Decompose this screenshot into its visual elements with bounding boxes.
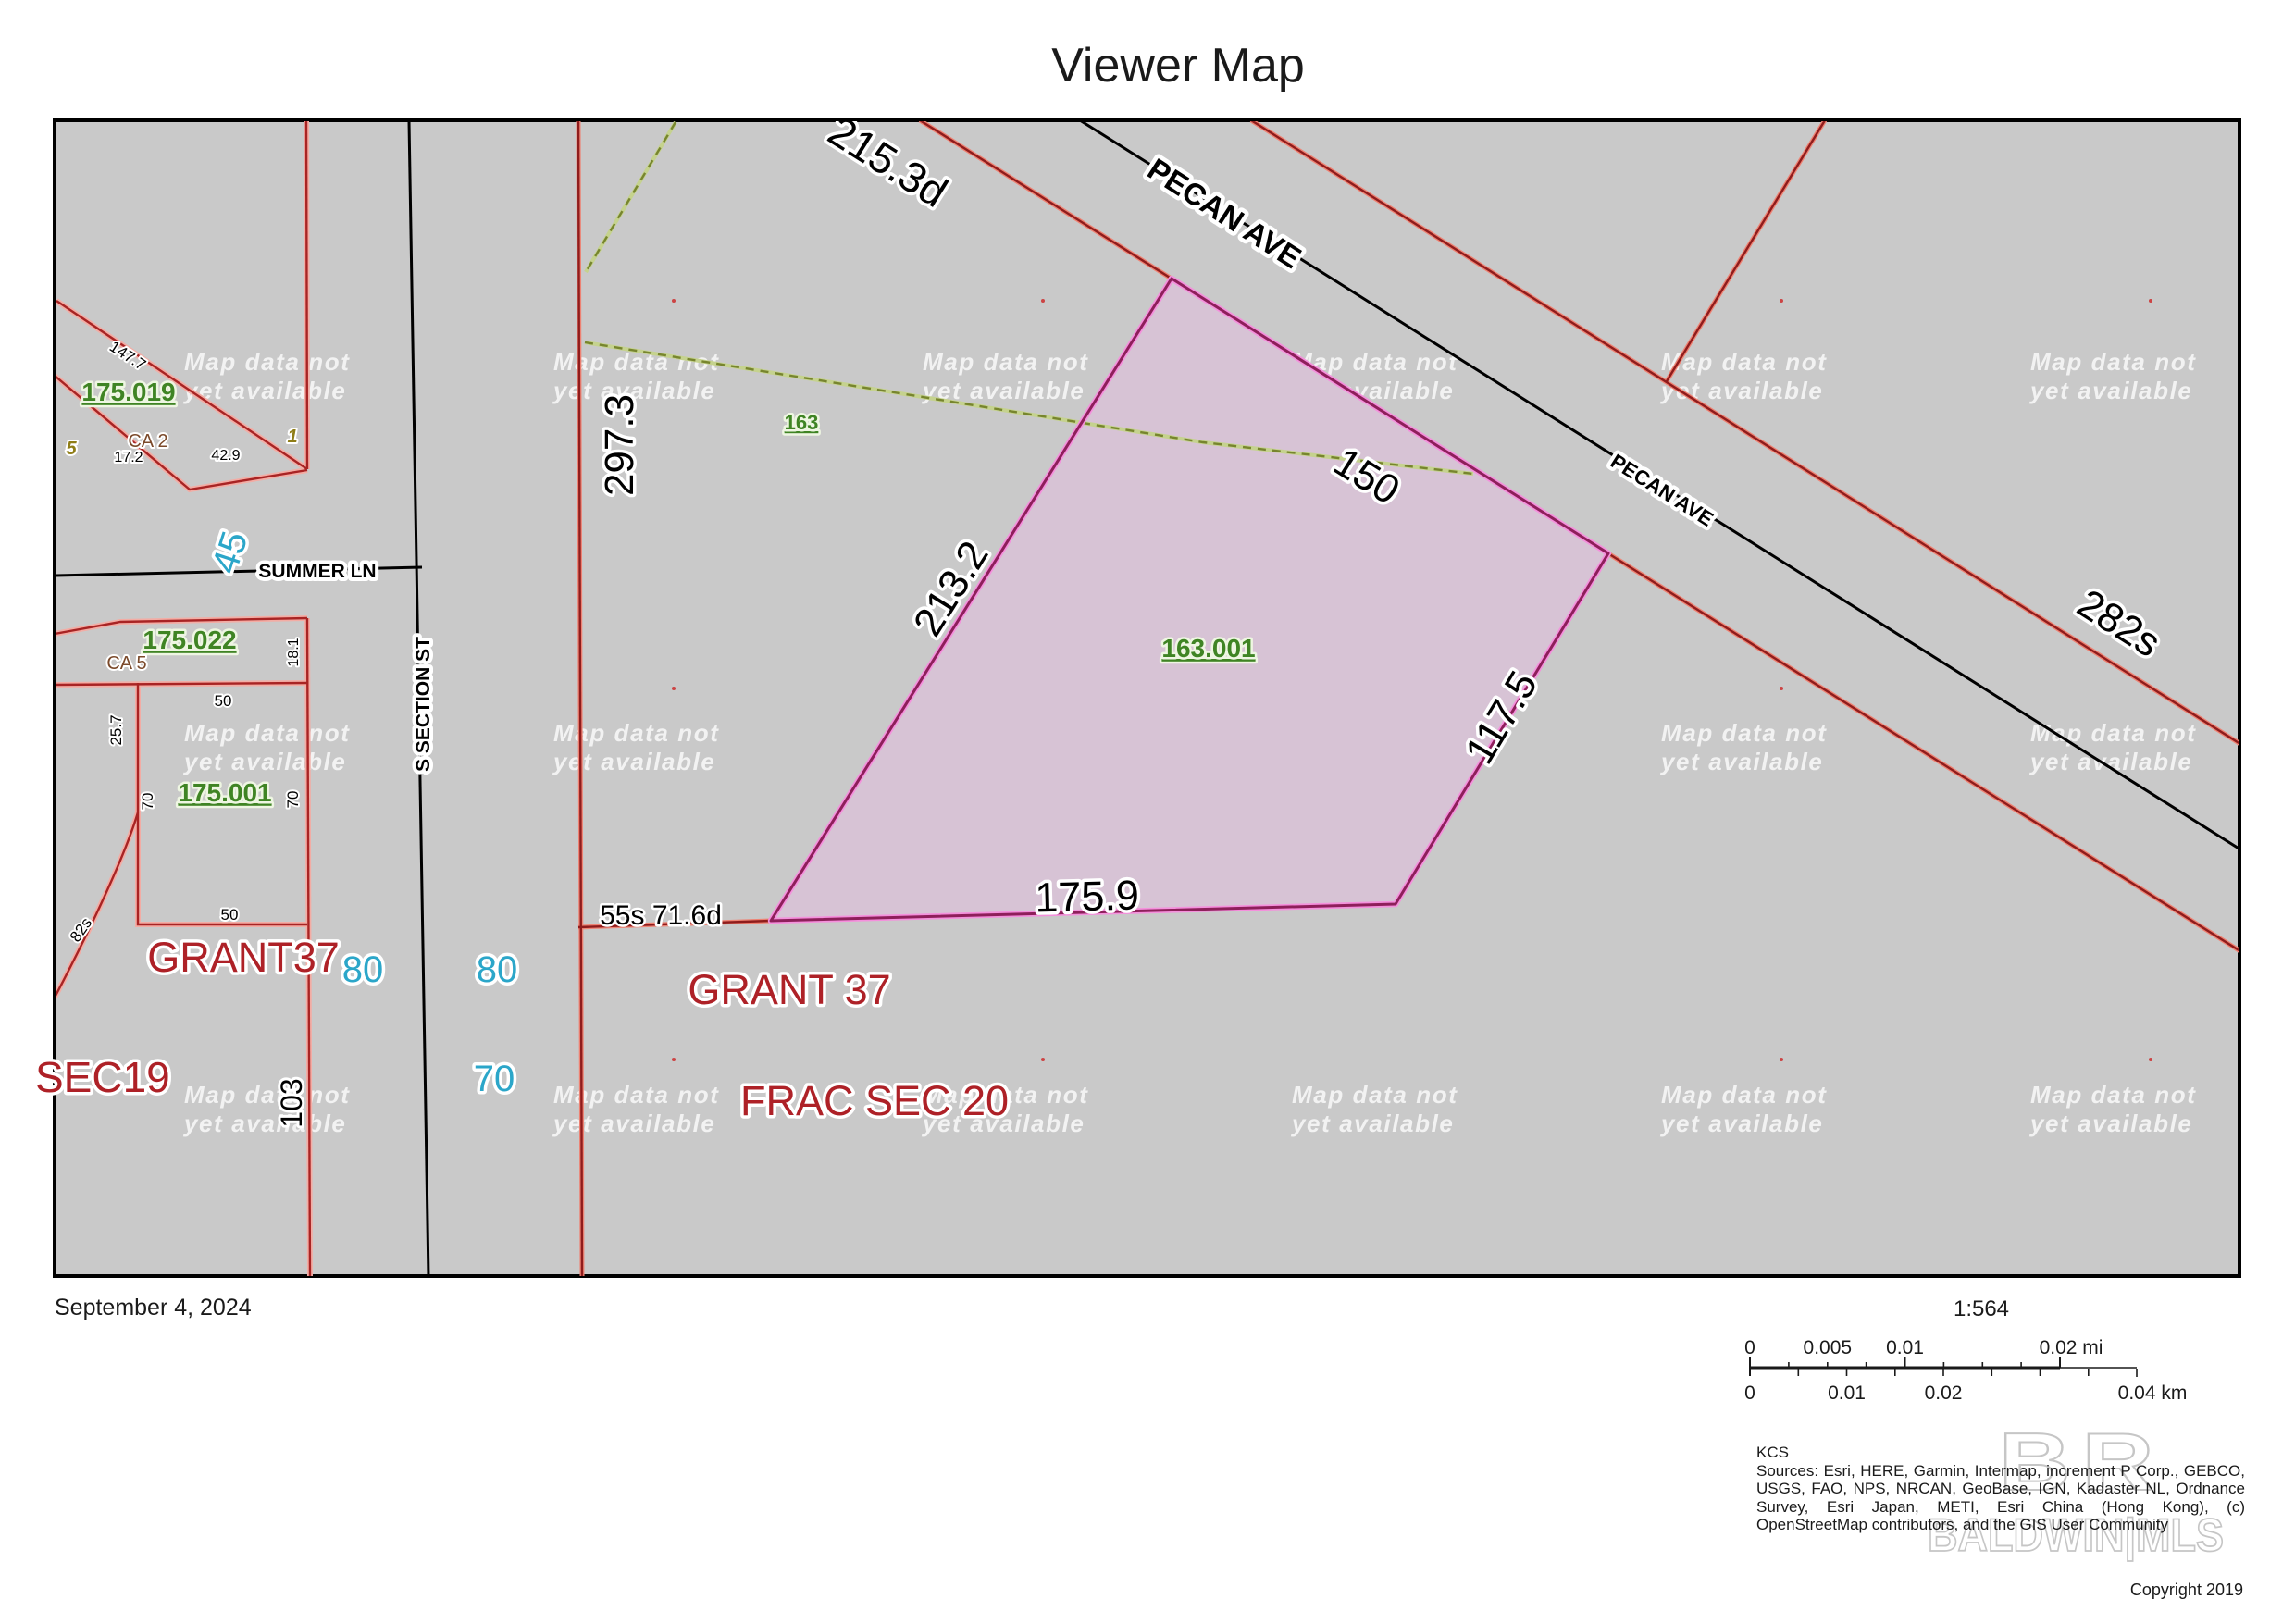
- svg-text:70: 70: [284, 791, 302, 809]
- svg-text:yet available: yet available: [1659, 748, 1823, 775]
- svg-text:297.3: 297.3: [597, 394, 642, 496]
- svg-text:175.019: 175.019: [81, 378, 175, 406]
- svg-text:80: 80: [477, 949, 518, 990]
- svg-text:FRAC SEC 20: FRAC SEC 20: [740, 1077, 1009, 1124]
- svg-text:Map data not: Map data not: [1661, 719, 1828, 747]
- svg-text:Map data not: Map data not: [1292, 1081, 1458, 1109]
- svg-text:17.2: 17.2: [114, 450, 143, 465]
- svg-text:Map data not: Map data not: [2030, 1081, 2197, 1109]
- svg-text:42.9: 42.9: [211, 448, 240, 464]
- svg-text:5: 5: [66, 439, 77, 459]
- svg-text:1: 1: [287, 427, 297, 447]
- svg-text:CA 2: CA 2: [128, 431, 167, 452]
- svg-text:yet available: yet available: [182, 1110, 346, 1137]
- svg-text:0.01: 0.01: [1828, 1382, 1866, 1404]
- svg-text:SUMMER LN: SUMMER LN: [258, 561, 376, 582]
- svg-text:SEC19: SEC19: [35, 1053, 170, 1101]
- svg-text:163.001: 163.001: [1161, 634, 1255, 663]
- svg-text:0.02: 0.02: [1925, 1382, 1963, 1404]
- svg-text:0.005: 0.005: [1804, 1337, 1853, 1358]
- svg-text:Map data not: Map data not: [1661, 1081, 1828, 1109]
- svg-text:CA 5: CA 5: [106, 653, 146, 674]
- svg-text:18.1: 18.1: [286, 638, 302, 666]
- svg-text:yet available: yet available: [552, 1110, 715, 1137]
- svg-text:103: 103: [275, 1078, 308, 1127]
- svg-text:1:564: 1:564: [1954, 1296, 2009, 1321]
- svg-text:yet available: yet available: [2028, 377, 2192, 404]
- svg-text:Map data not: Map data not: [923, 348, 1089, 376]
- svg-text:55s 71.6d: 55s 71.6d: [600, 900, 722, 931]
- svg-text:0: 0: [1744, 1382, 1755, 1404]
- svg-text:0.02 mi: 0.02 mi: [2040, 1337, 2103, 1358]
- svg-text:175.022: 175.022: [143, 626, 236, 654]
- svg-text:163: 163: [785, 411, 819, 434]
- svg-text:Map data not: Map data not: [184, 719, 351, 747]
- svg-text:80: 80: [342, 949, 384, 990]
- svg-text:S SECTION ST: S SECTION ST: [413, 637, 434, 772]
- svg-text:yet available: yet available: [2028, 1110, 2192, 1137]
- svg-text:Map data not: Map data not: [2030, 348, 2197, 376]
- svg-text:0.01: 0.01: [1886, 1337, 1924, 1358]
- svg-text:yet available: yet available: [552, 748, 715, 775]
- svg-text:0: 0: [1744, 1337, 1755, 1358]
- svg-text:yet available: yet available: [182, 748, 346, 775]
- svg-text:Map data not: Map data not: [184, 348, 351, 376]
- svg-text:Map data not: Map data not: [184, 1081, 351, 1109]
- svg-text:70: 70: [474, 1059, 515, 1099]
- svg-text:yet available: yet available: [1659, 1110, 1823, 1137]
- svg-text:Viewer Map: Viewer Map: [1051, 39, 1305, 93]
- svg-text:175.001: 175.001: [178, 778, 271, 807]
- svg-text:Map data not: Map data not: [553, 1081, 720, 1109]
- svg-text:50: 50: [215, 692, 232, 710]
- svg-text:yet available: yet available: [2028, 748, 2192, 775]
- svg-text:GRANT 37: GRANT 37: [688, 966, 890, 1013]
- svg-text:Copyright 2019: Copyright 2019: [2130, 1581, 2243, 1599]
- svg-text:70: 70: [139, 793, 156, 811]
- svg-text:0.04 km: 0.04 km: [2118, 1382, 2188, 1404]
- svg-text:yet available: yet available: [1290, 1110, 1454, 1137]
- svg-text:25.7: 25.7: [107, 714, 125, 745]
- svg-text:September 4, 2024: September 4, 2024: [55, 1295, 252, 1320]
- svg-text:175.9: 175.9: [1035, 872, 1140, 922]
- svg-text:50: 50: [221, 906, 239, 924]
- svg-text:GRANT37: GRANT37: [147, 934, 340, 981]
